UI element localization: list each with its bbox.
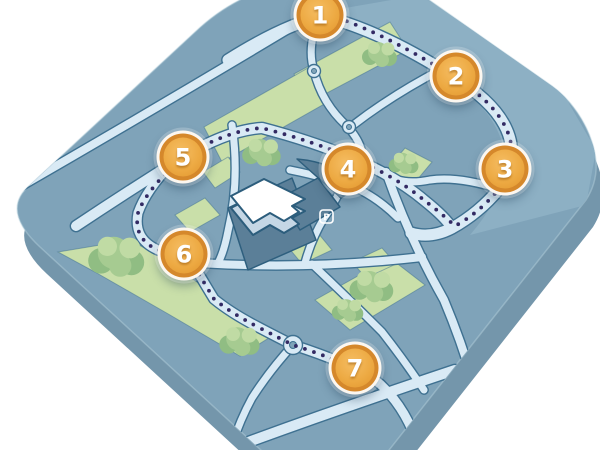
roundabout-island [347, 125, 352, 130]
map-marker-2[interactable]: 2 [430, 50, 483, 103]
map-marker-5[interactable]: 5 [157, 131, 210, 184]
map-marker-4[interactable]: 4 [322, 143, 375, 196]
marker-number: 7 [347, 356, 364, 380]
map-canvas: P 1234567 [0, 0, 600, 450]
marker-number: 2 [448, 64, 465, 88]
marker-number: 1 [312, 3, 329, 27]
map-marker-3[interactable]: 3 [479, 143, 532, 196]
marker-number: 4 [340, 157, 357, 181]
map-marker-7[interactable]: 7 [329, 342, 382, 395]
map-marker-6[interactable]: 6 [158, 228, 211, 281]
parking-sign-label: P [323, 213, 330, 223]
marker-number: 3 [497, 157, 514, 181]
marker-number: 6 [176, 242, 193, 266]
marker-number: 5 [175, 145, 192, 169]
map-illustration: P [0, 0, 600, 450]
roundabout-island [312, 69, 317, 74]
